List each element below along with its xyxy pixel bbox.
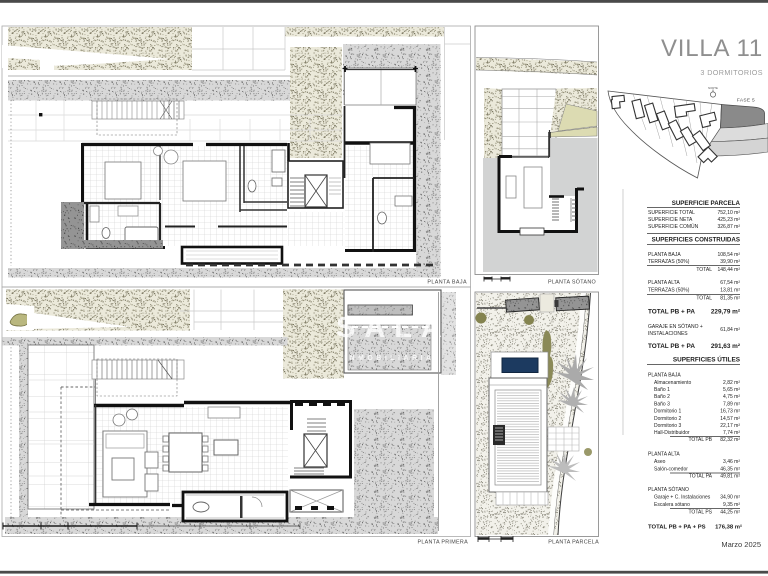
svg-text:13,81 m²: 13,81 m²: [720, 288, 740, 294]
svg-text:61,84 m²: 61,84 m²: [720, 327, 740, 333]
svg-text:TOTAL PB + PA: TOTAL PB + PA: [648, 309, 695, 316]
svg-text:7,89 m²: 7,89 m²: [723, 402, 740, 408]
svg-text:34,90 m²: 34,90 m²: [720, 495, 740, 501]
svg-text:Baño 1: Baño 1: [654, 387, 670, 393]
svg-text:Garaje + C. Instalaciones: Garaje + C. Instalaciones: [654, 495, 711, 501]
svg-text:TOTAL PB + PA + PS: TOTAL PB + PA + PS: [648, 525, 706, 531]
svg-text:3,46 m²: 3,46 m²: [723, 459, 740, 465]
svg-text:Dormitorio 3: Dormitorio 3: [654, 423, 681, 429]
svg-text:TOTAL: TOTAL: [696, 267, 712, 273]
svg-text:PLANTA ALTA: PLANTA ALTA: [648, 452, 680, 458]
svg-text:TOTAL PS: TOTAL PS: [688, 510, 712, 516]
svg-text:TOTAL PA: TOTAL PA: [689, 474, 713, 480]
svg-text:SUPERFICIE COMÚN: SUPERFICIE COMÚN: [648, 223, 699, 230]
svg-text:Salón-comedor: Salón-comedor: [654, 467, 688, 473]
svg-text:22,17 m²: 22,17 m²: [720, 423, 740, 429]
svg-text:176,38 m²: 176,38 m²: [715, 524, 742, 531]
svg-text:PLANTA SÓTANO: PLANTA SÓTANO: [548, 279, 596, 286]
svg-text:4,75 m²: 4,75 m²: [723, 394, 740, 400]
svg-text:326,87 m²: 326,87 m²: [717, 224, 740, 230]
svg-text:7,74 m²: 7,74 m²: [723, 430, 740, 436]
svg-text:16,73 m²: 16,73 m²: [720, 409, 740, 415]
svg-text:SUPERFICIES ÚTILES: SUPERFICIES ÚTILES: [673, 355, 741, 364]
svg-text:Dormitorio 1: Dormitorio 1: [654, 409, 681, 415]
svg-text:PLANTA BAJA: PLANTA BAJA: [427, 280, 467, 286]
svg-text:Almacenamiento: Almacenamiento: [654, 380, 691, 386]
svg-text:82,32 m²: 82,32 m²: [720, 437, 740, 443]
svg-text:9,35 m²: 9,35 m²: [723, 502, 740, 508]
svg-text:SUPERFICIE TOTAL: SUPERFICIE TOTAL: [648, 210, 695, 216]
svg-text:49,81 m²: 49,81 m²: [720, 474, 740, 480]
svg-text:PLANTA ALTA: PLANTA ALTA: [648, 280, 680, 286]
svg-text:TOTAL PB: TOTAL PB: [688, 437, 712, 443]
svg-text:SUPERFICIE PARCELA: SUPERFICIE PARCELA: [672, 200, 741, 207]
svg-text:Dormitorio 2: Dormitorio 2: [654, 416, 681, 422]
svg-text:5,65 m²: 5,65 m²: [723, 387, 740, 393]
svg-text:148,44 m²: 148,44 m²: [717, 267, 740, 273]
svg-text:FASE 5: FASE 5: [737, 98, 755, 104]
svg-text:108,54 m²: 108,54 m²: [717, 252, 740, 258]
svg-text:SUPERFICIES CONSTRUIDAS: SUPERFICIES CONSTRUIDAS: [652, 237, 740, 244]
svg-text:PLANTA PRIMERA: PLANTA PRIMERA: [417, 540, 468, 546]
svg-text:Marzo 2025: Marzo 2025: [721, 540, 761, 549]
svg-text:81,35 m²: 81,35 m²: [720, 296, 740, 302]
svg-text:Hall-Distribuidor: Hall-Distribuidor: [654, 430, 690, 436]
svg-text:Escalera sótano: Escalera sótano: [654, 502, 690, 508]
svg-text:425,23 m²: 425,23 m²: [717, 217, 740, 223]
svg-text:TOTAL: TOTAL: [696, 296, 712, 302]
svg-text:3 DORMITORIOS: 3 DORMITORIOS: [700, 68, 763, 77]
svg-text:2,82 m²: 2,82 m²: [723, 380, 740, 386]
svg-text:752,10 m²: 752,10 m²: [717, 210, 740, 216]
svg-text:TERRAZAS (50%): TERRAZAS (50%): [648, 259, 690, 265]
svg-text:Aseo: Aseo: [654, 459, 666, 465]
svg-text:GARAJE EN SÓTANO +: GARAJE EN SÓTANO +: [648, 323, 703, 330]
svg-text:NORTE: NORTE: [708, 86, 718, 90]
svg-text:PLANTA SÓTANO: PLANTA SÓTANO: [648, 486, 689, 493]
svg-text:229,79 m²: 229,79 m²: [711, 309, 740, 316]
svg-text:44,25 m²: 44,25 m²: [720, 510, 740, 516]
svg-text:SUPERFICIE NETA: SUPERFICIE NETA: [648, 217, 693, 223]
svg-text:Baño 3: Baño 3: [654, 402, 670, 408]
svg-text:PLANTA BAJA: PLANTA BAJA: [648, 373, 681, 379]
svg-text:14,57 m²: 14,57 m²: [720, 416, 740, 422]
svg-text:PLANTA BAJA: PLANTA BAJA: [648, 252, 681, 258]
svg-text:INSTALACIONES: INSTALACIONES: [648, 331, 688, 337]
svg-text:INMOBILIARIA: INMOBILIARIA: [344, 355, 435, 362]
svg-text:TERRAZAS (50%): TERRAZAS (50%): [648, 288, 690, 294]
svg-text:291,63 m²: 291,63 m²: [711, 343, 740, 350]
svg-text:Baño 2: Baño 2: [654, 394, 670, 400]
svg-text:PLANTA PARCELA: PLANTA PARCELA: [548, 540, 599, 546]
svg-text:VILLA 11: VILLA 11: [661, 35, 763, 62]
svg-text:TOTAL PB + PA: TOTAL PB + PA: [648, 343, 695, 350]
svg-text:39,90 m²: 39,90 m²: [720, 259, 740, 265]
svg-text:SALA: SALA: [336, 312, 451, 344]
svg-text:67,54 m²: 67,54 m²: [720, 280, 740, 286]
svg-text:46,35 m²: 46,35 m²: [720, 467, 740, 473]
